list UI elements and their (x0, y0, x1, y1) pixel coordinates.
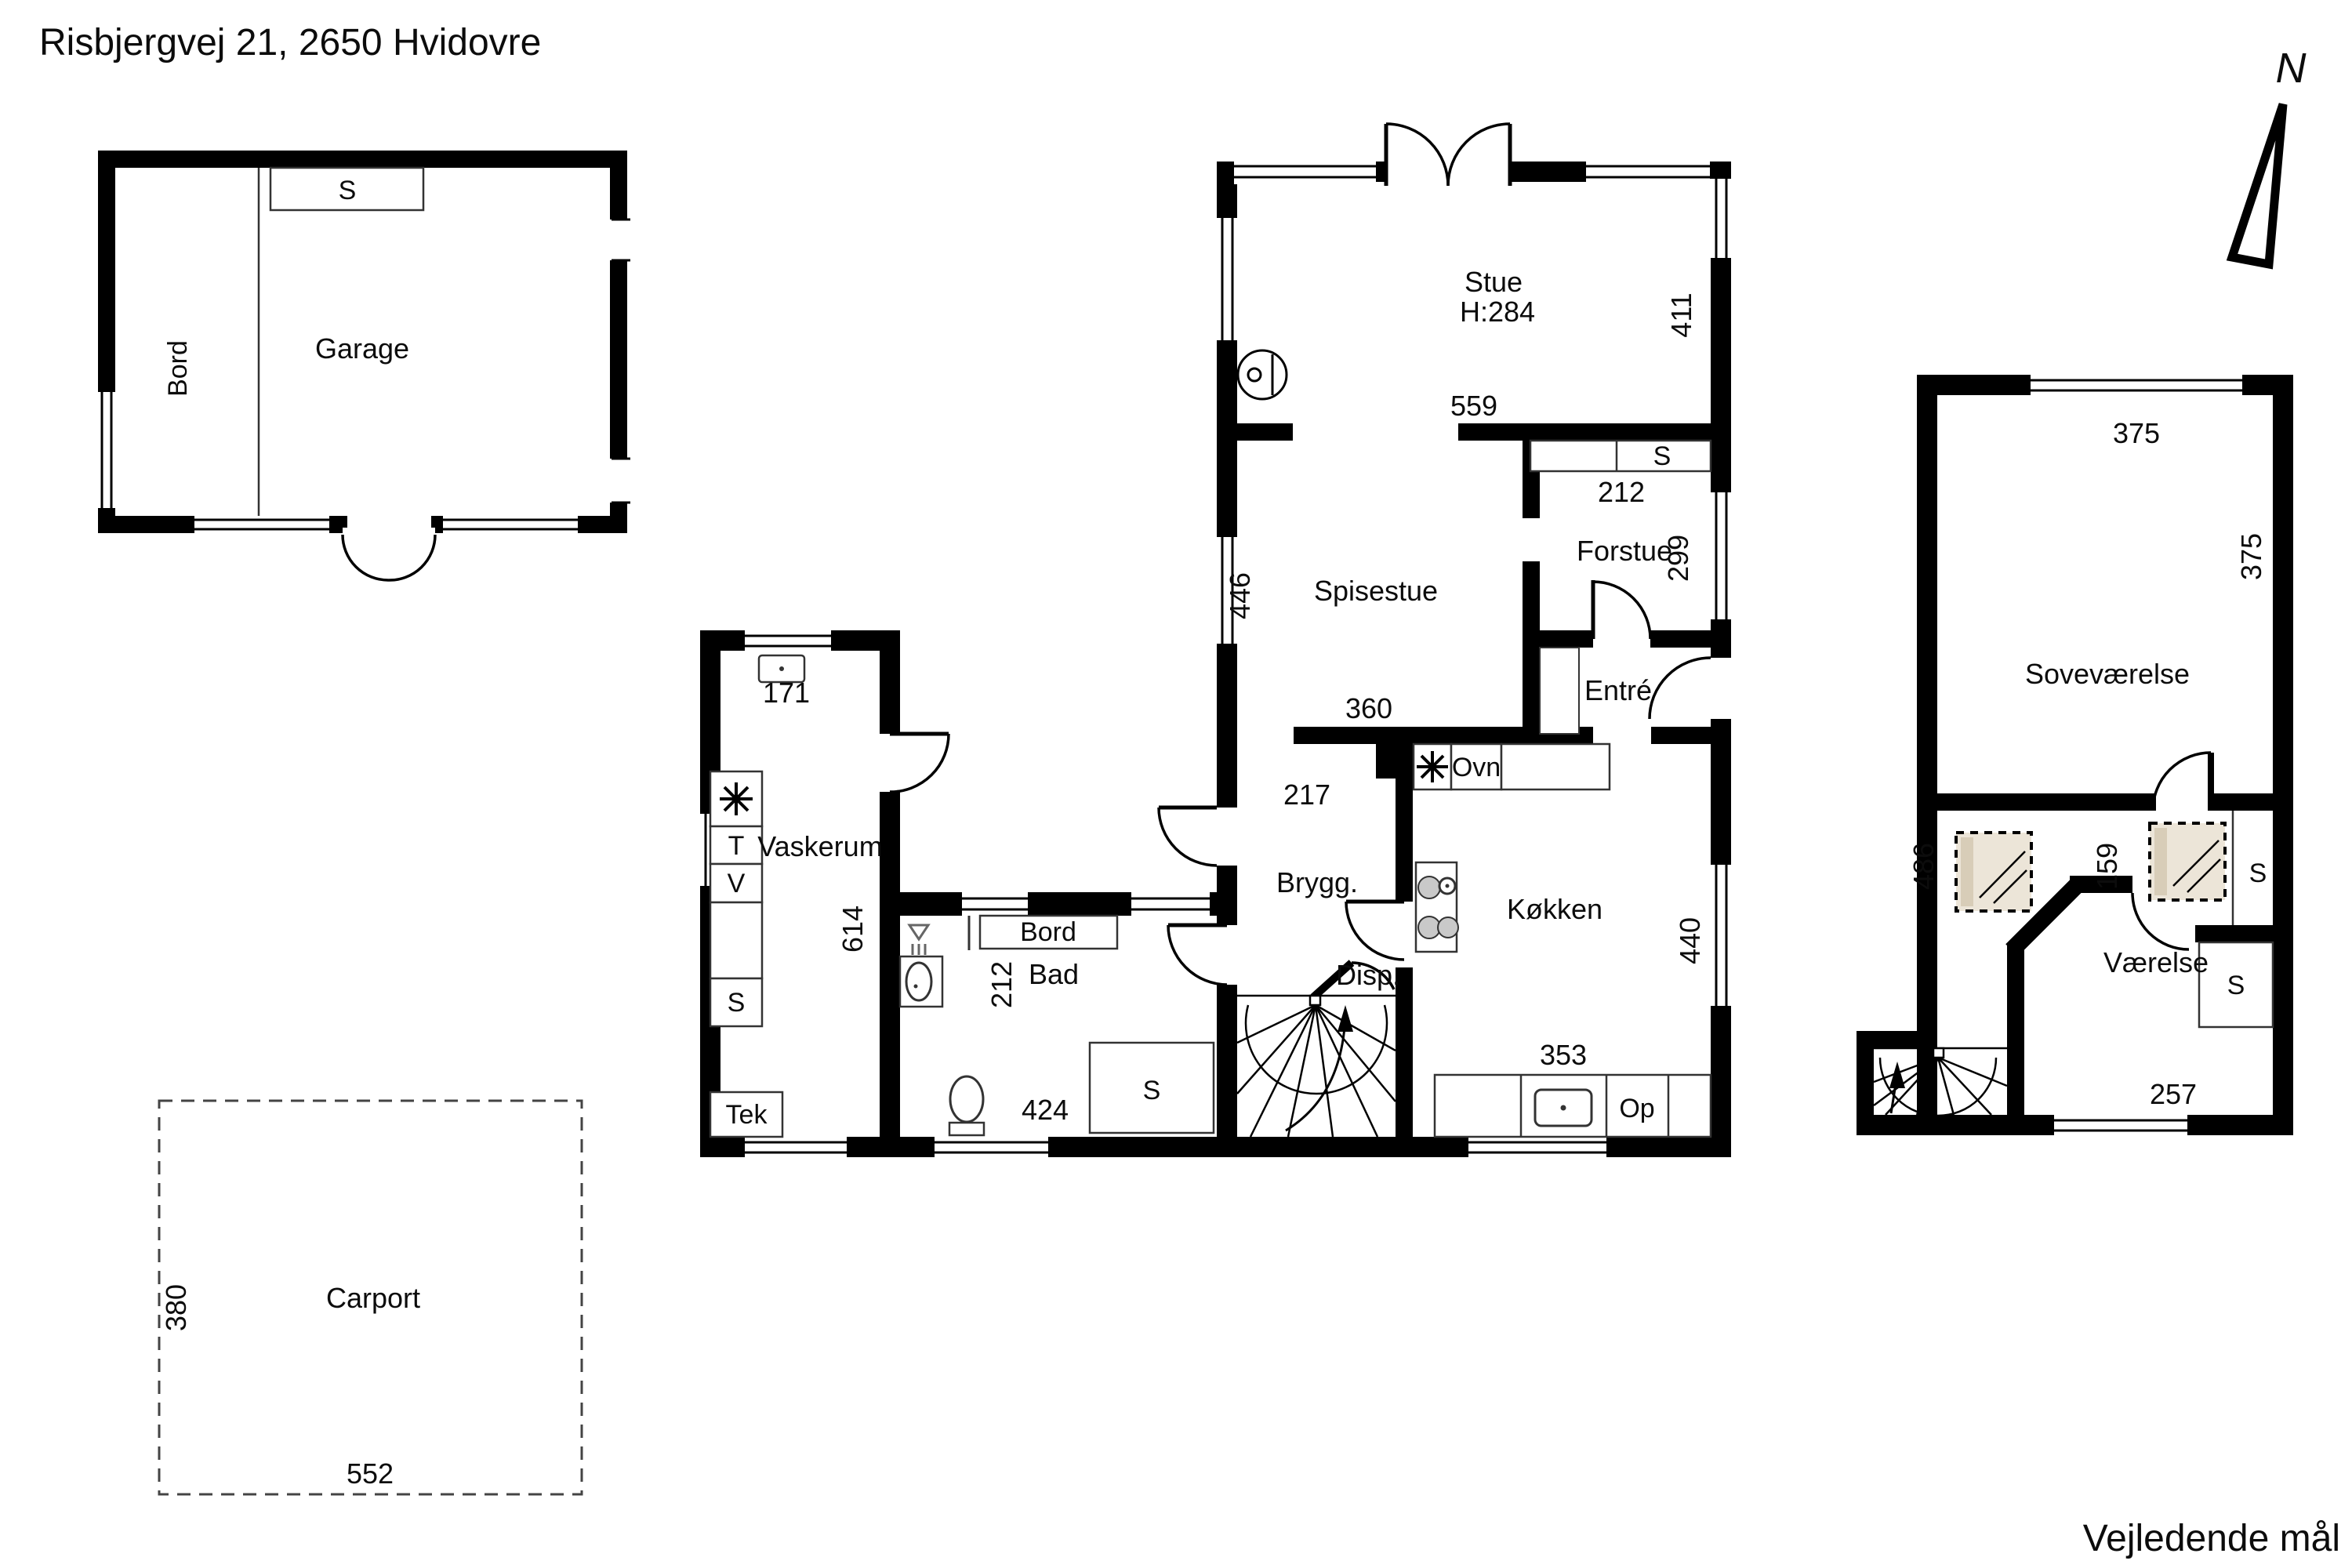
vaskerum-dim-side: 614 (837, 906, 869, 953)
bad-sink-icon (900, 956, 942, 1007)
brygg-dim: 217 (1283, 779, 1330, 811)
shower-drain-icon (909, 925, 928, 955)
window-stue-top-right (1586, 159, 1710, 184)
vaerelse-label: Værelse (2103, 946, 2209, 978)
window-vaskerum-bottom (745, 1134, 847, 1160)
forstue-closet-dim: 212 (1598, 476, 1645, 508)
kokken-dim-right: 440 (1674, 917, 1706, 964)
window-vaskerum-top (745, 628, 831, 653)
sove-label: Soveværelse (2025, 658, 2190, 690)
footer-note: Vejledende mål (2083, 1518, 2340, 1559)
garage-window-bottom-right (443, 514, 578, 535)
window-badwing-top-2 (1131, 890, 1210, 918)
cooktop-icon (1416, 862, 1458, 952)
stue-dim-right: 411 (1665, 292, 1697, 337)
kokken-dim-bottom: 353 (1540, 1039, 1587, 1071)
main-house-fixtures (710, 350, 1711, 1137)
entre-label: Entré (1584, 674, 1652, 706)
bad-label: Bad (1029, 958, 1079, 990)
window-sove-top (2031, 372, 2242, 397)
main-stairs-icon (1237, 996, 1396, 1137)
north-arrow-icon: N (2232, 45, 2307, 264)
sove-door (2153, 753, 2211, 811)
window-stue-right (1708, 179, 1733, 258)
toilet-icon (949, 1076, 984, 1135)
bad-dim-bottom: 424 (1022, 1094, 1069, 1126)
window-stue-top-left (1234, 159, 1376, 184)
carport-area: Carport 380 552 (159, 1101, 582, 1494)
vaskerum-v-label: V (728, 869, 746, 898)
stue-terrace-door (1386, 124, 1510, 187)
forstue-dim-right: 299 (1662, 535, 1694, 582)
floor-plan-drawing: Risbjergvej 21, 2650 Hvidovre Vejledende… (0, 0, 2352, 1568)
vaskerum-label: Vaskerum (757, 830, 882, 862)
bad-closet-label: S (1143, 1076, 1161, 1105)
forstue-closet-label: S (1653, 441, 1671, 471)
kitchen-counter-bottom (1435, 1075, 1711, 1137)
spisestue-dim-left: 446 (1224, 572, 1256, 619)
sove-dim-top: 375 (2113, 417, 2160, 449)
garage-window-right-bottom (607, 459, 630, 503)
forstue-closet (1530, 441, 1711, 471)
oven-label: Ovn (1452, 753, 1501, 782)
entre-exterior-door (1650, 658, 1736, 719)
first-floor-building: 375 Soveværelse 375 159 486 S S Værelse … (1857, 372, 2293, 1138)
spisestue-dim-bottom: 360 (1345, 692, 1392, 724)
kokken-label: Køkken (1507, 893, 1602, 925)
carport-dim-left: 380 (160, 1284, 192, 1331)
vaskerum-star-icon (720, 782, 753, 815)
carport-label: Carport (326, 1282, 420, 1314)
hall-dim-left: 486 (1907, 843, 1940, 890)
garage-window-left (95, 392, 118, 508)
vaerelse-dim-bottom: 257 (2150, 1078, 2197, 1110)
bad-table-label: Bord (1020, 917, 1076, 947)
floor-plan-page: Risbjergvej 21, 2650 Hvidovre Vejledende… (0, 0, 2352, 1568)
hall-closet-bottom-label: S (2227, 971, 2245, 1000)
hall-corridor-door (1168, 925, 1242, 985)
vaskerum-closet-label: S (728, 988, 746, 1018)
garage-closet-label: S (339, 176, 357, 205)
wood-stove-icon (1238, 350, 1287, 399)
vaskerum-dim-top: 171 (763, 677, 810, 709)
skylight-icon-right (2150, 823, 2225, 900)
kokken-op-label: Op (1619, 1094, 1654, 1123)
spisestue-label: Spisestue (1314, 575, 1438, 607)
window-stue-left (1214, 218, 1240, 340)
stue-height-label: H:284 (1460, 296, 1535, 328)
garage-table-label: Bord (163, 340, 193, 397)
garage-door-icon (336, 512, 443, 580)
skylight-icon-left (1956, 833, 2031, 911)
stue-opening-dim: 559 (1450, 390, 1497, 422)
vaskerum-t-label: T (728, 831, 745, 861)
entre-closet (1540, 648, 1579, 734)
forstue-entre-door (1593, 580, 1650, 639)
brygg-label: Brygg. (1276, 866, 1358, 898)
garage-window-right-top (607, 220, 630, 260)
window-kokken-bottom (1468, 1134, 1606, 1160)
sove-dim-right: 375 (2235, 533, 2267, 580)
forstue-label: Forstue (1577, 535, 1672, 567)
brygg-kokken-door (1346, 902, 1404, 960)
window-badwing-top-1 (962, 890, 1028, 918)
vaskerum-fixtures (710, 655, 804, 1137)
page-title: Risbjergvej 21, 2650 Hvidovre (39, 22, 541, 64)
hall-closet-top-label: S (2249, 858, 2267, 888)
north-label: N (2276, 45, 2307, 92)
garage-room-label: Garage (315, 332, 409, 365)
window-vaerelse-bottom (2054, 1112, 2187, 1138)
vaskerum-exterior-door (875, 734, 949, 792)
disp-label: Disp. (1336, 959, 1400, 991)
bad-dim-side: 212 (985, 961, 1018, 1008)
hall-dim: 159 (2091, 843, 2123, 890)
window-bad-bottom-1 (935, 1134, 1048, 1160)
first-floor-stairs-icon (1874, 1048, 2024, 1116)
vaskerum-tek-label: Tek (726, 1100, 768, 1130)
kitchen-sink-icon (1535, 1090, 1592, 1126)
carport-dim-bottom: 552 (347, 1457, 394, 1490)
garage-window-bottom-left (194, 514, 329, 535)
stue-label: Stue (1465, 266, 1523, 298)
brygg-exterior-door (1159, 808, 1242, 866)
stove-star-icon (1417, 751, 1448, 782)
window-kokken-right (1708, 865, 1733, 1006)
window-forstue-right (1708, 492, 1733, 619)
garage-building: S Garage Bord (95, 159, 630, 580)
